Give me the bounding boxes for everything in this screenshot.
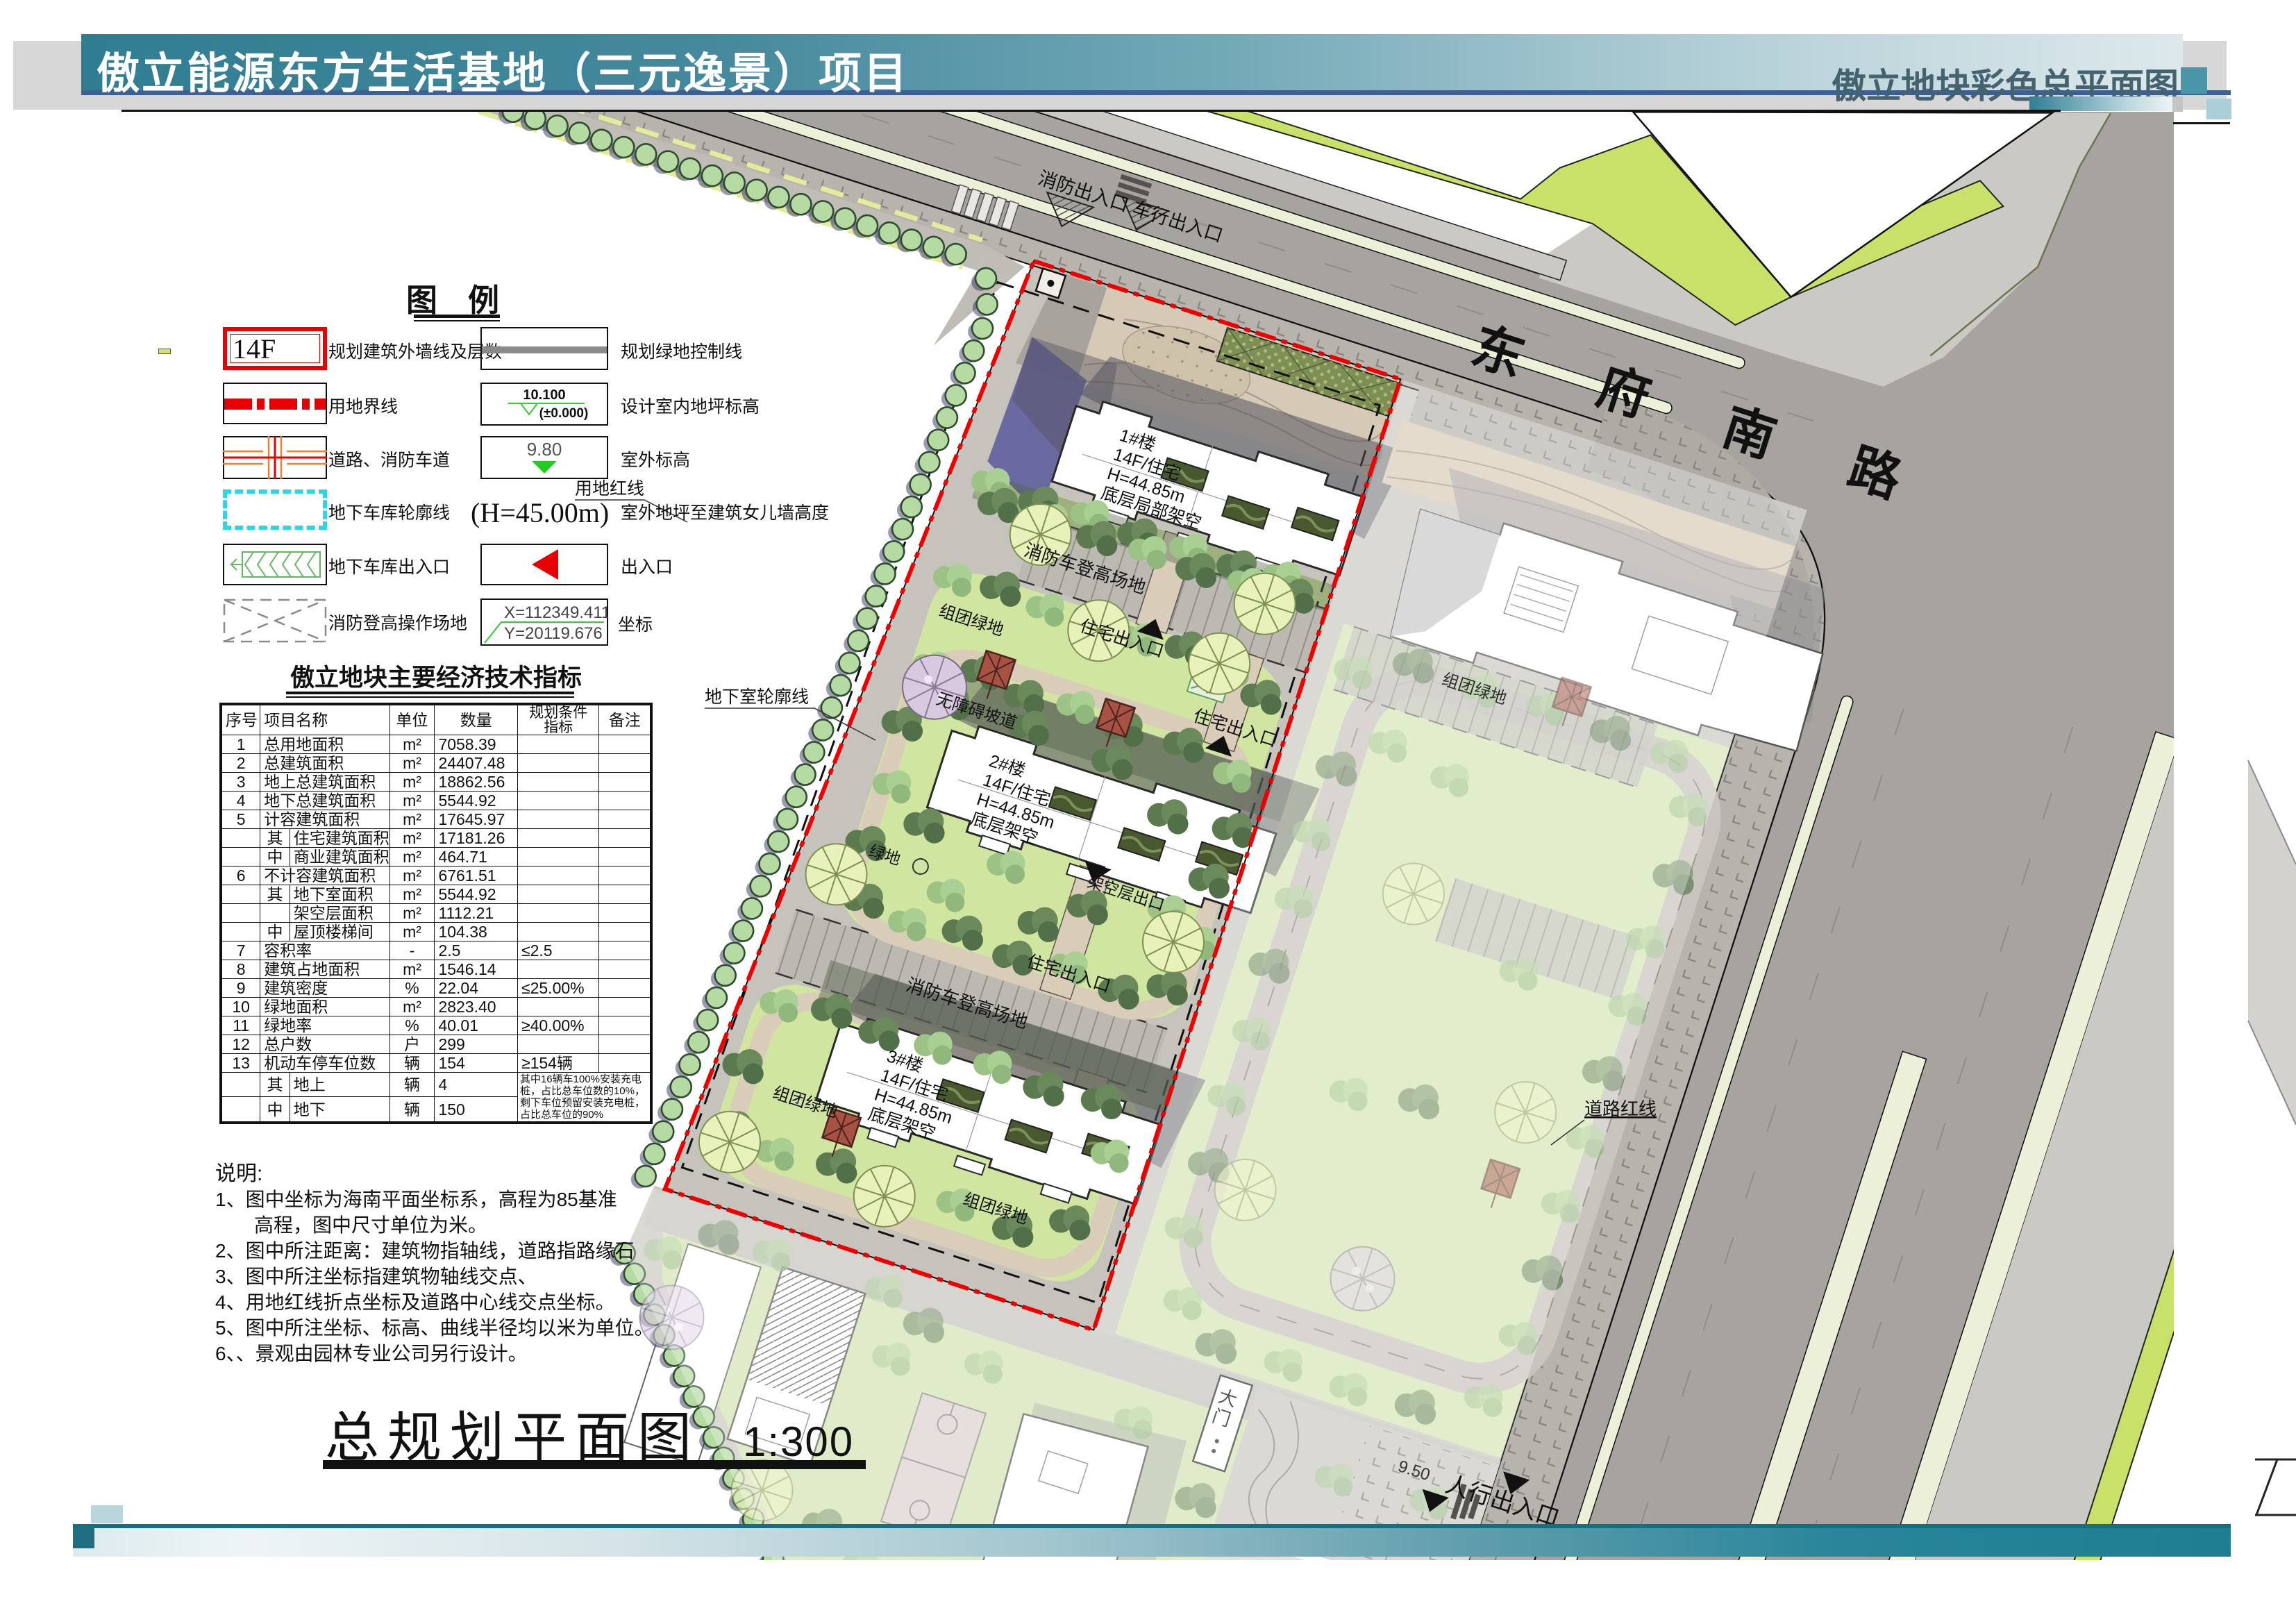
svg-text:用地红线: 用地红线 bbox=[575, 479, 644, 499]
svg-text:地下室轮廓线: 地下室轮廓线 bbox=[705, 687, 809, 707]
svg-text:X=112349.411: X=112349.411 bbox=[504, 603, 608, 622]
svg-text:道路红线: 道路红线 bbox=[1584, 1098, 1657, 1119]
svg-text:Y=20119.676: Y=20119.676 bbox=[504, 624, 603, 643]
svg-text:9.80: 9.80 bbox=[527, 439, 562, 460]
svg-text:(±0.000): (±0.000) bbox=[539, 406, 589, 421]
svg-text:10.100: 10.100 bbox=[523, 387, 565, 403]
